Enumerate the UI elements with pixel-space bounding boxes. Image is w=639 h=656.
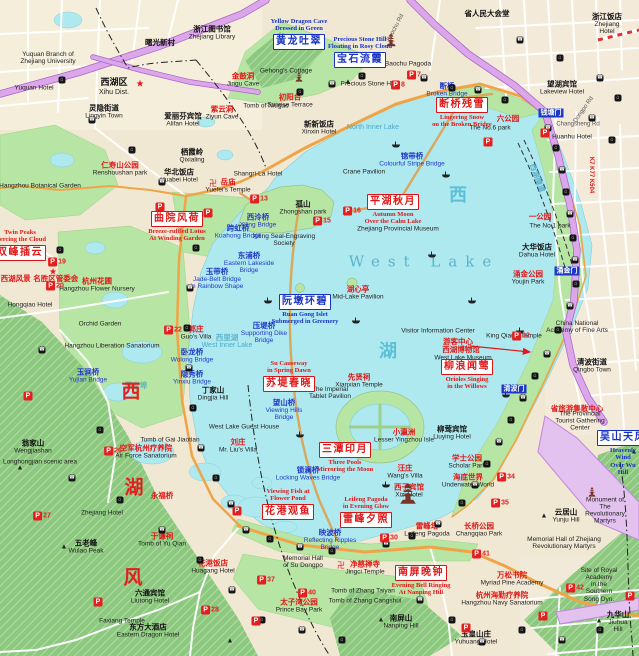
phone-icon: ☎ [479, 639, 486, 646]
map-label: Shangri-La Hotel [234, 170, 283, 177]
gate-label: 清波门 [502, 385, 527, 394]
parking-number: 15 [323, 218, 331, 225]
hotel-icon: ⌂ [609, 137, 616, 144]
district-label: 西湖区Xihu Dist. [99, 79, 129, 97]
map-label: 华北饭店Huabei Hotel [160, 168, 198, 183]
hotel-icon: ⌂ [267, 536, 274, 543]
scenic-caption: Ruan Gong Islet Submerged in Greenery [272, 311, 339, 326]
boat-icon [502, 395, 510, 398]
phone-icon: ☎ [559, 637, 566, 644]
map-label: Site of Royal Academy in the Southern So… [579, 567, 619, 603]
parking-icon: P [252, 617, 261, 626]
west-lake-title: West Lake [349, 255, 499, 270]
phone-icon: ☎ [159, 179, 166, 186]
phone-icon: ☎ [297, 544, 304, 551]
map-label: 新新饭店Xinxin Hotel [302, 120, 337, 135]
boat-icon [392, 145, 400, 148]
scenic-label: 花港观鱼 [262, 504, 314, 520]
map-label: 小瀛洲Lesser Yingzhou Isle [374, 428, 434, 443]
parking-p-glyph: P [164, 326, 173, 335]
parking-p-glyph: P [462, 624, 471, 633]
parking-p-glyph: P [497, 473, 506, 482]
map-label: 净慈禅寺Jingci Temple [345, 560, 384, 575]
parking-number: 35 [501, 500, 509, 507]
parking-p-glyph: P [33, 512, 42, 521]
hotel-icon: ⌂ [297, 89, 304, 96]
map-label: 六公园 [497, 115, 520, 123]
star-icon: ★ [49, 268, 57, 277]
parking-p-glyph: P [24, 392, 33, 401]
hotel-icon: ⌂ [409, 533, 416, 540]
map-label: 一公园 [529, 213, 552, 221]
map-label: 五老峰Wulao Peak [69, 539, 104, 554]
parking-icon: P [233, 507, 242, 516]
map-label: 杭州花圃Hangzhou Flower Nursery [59, 277, 135, 292]
scenic-caption: Lingering Snow on the Broken Bridge [432, 114, 492, 129]
scenic-label: 南屏晚钟 [395, 565, 447, 581]
map-label: 九华山Jiuhua Hill [607, 611, 630, 633]
map-label: Tomb of Gai Jiaotian [140, 436, 199, 443]
parking-p-glyph: P [541, 129, 550, 138]
hotel-icon: ⌂ [519, 627, 526, 634]
parking-icon: P13 [250, 195, 268, 204]
map-label: 爱丽芬宾馆Alifan Hotel [164, 112, 202, 127]
hotel-icon: ⌂ [615, 95, 622, 102]
parking-p-glyph: P [472, 550, 481, 559]
parking-p-glyph: P [257, 576, 266, 585]
map-label: 栖霞岭Qixialing [180, 148, 205, 163]
parking-number: 28 [211, 607, 219, 614]
phone-icon: ☎ [475, 87, 482, 94]
phone-icon: ☎ [520, 395, 527, 402]
parking-number: 42 [576, 585, 584, 592]
parking-p-glyph: P [104, 447, 113, 456]
map-label: 浙江饭店Zhejiang Hotel [591, 13, 623, 35]
parking-number: 22 [174, 327, 182, 334]
parking-p-glyph: P [233, 507, 242, 516]
scenic-caption: Leifeng Pagoda in Evening Glow [343, 496, 389, 511]
hotel-icon: ⌂ [573, 281, 580, 288]
map-label: 万松书院Myriad Pine Academy [481, 571, 544, 586]
parking-number: 41 [482, 551, 490, 558]
map-label: Visitor Information Center [401, 327, 475, 334]
scenic-label: 柳浪闻莺 [441, 359, 493, 375]
map-label: Gehong's Cottage [260, 67, 312, 74]
hotel-icon: ⌂ [553, 145, 560, 152]
phone-icon: ☎ [186, 365, 193, 372]
parking-p-glyph: P [566, 584, 575, 593]
phone-icon: ☎ [243, 527, 250, 534]
parking-p-glyph: P [343, 207, 352, 216]
map-label: 南屏山Nanping Hill [383, 614, 418, 629]
hotel-icon: ⌂ [449, 617, 456, 624]
hotel-icon: ⌂ [97, 427, 104, 434]
inner-lake-label: North Inner Lake [347, 124, 399, 132]
map-label: Memorial Hall of Zhejiang Revolutionary … [527, 536, 601, 550]
phone-icon: ☎ [69, 475, 76, 482]
map-label: 西湖博物馆 [442, 346, 480, 354]
map-label: 翁家山Wengjiashan [14, 439, 51, 454]
map-label: Hangzhou Botanical Garden [0, 182, 81, 189]
hotel-icon: ⌂ [563, 189, 570, 196]
map-label: 望湖宾馆Lakeview Hotel [540, 80, 584, 95]
peak-icon: ▲ [345, 79, 352, 86]
map-label: Yuquan Hotel [14, 84, 53, 91]
scenic-label: 三潭印月 [319, 442, 371, 458]
phone-icon: ☎ [517, 37, 524, 44]
parking-icon: P [204, 209, 213, 218]
map-label: Longhongjian scenic area [3, 458, 77, 465]
parking-icon: P [541, 129, 550, 138]
scenic-caption: Su Causeway in Spring Dawn [267, 360, 311, 375]
parking-number: 26 [114, 448, 122, 455]
parking-icon: P26 [104, 447, 122, 456]
lake-big-character: 湖 [379, 343, 397, 361]
map-label: West Lake Guest House [209, 423, 279, 430]
parking-p-glyph: P [484, 138, 493, 147]
parking-number: 32 [522, 333, 530, 340]
peak-icon: ▲ [17, 465, 24, 472]
parking-p-glyph: P [46, 282, 55, 291]
scenic-caption: Breeze-ruffled Lotus At Winding Garden [148, 228, 205, 243]
map-label-layer: 西湖West LakeNorth Inner Lake西里湖West Inner… [0, 0, 639, 656]
phone-icon: ☎ [567, 303, 574, 310]
hotel-icon: ⌂ [329, 548, 336, 555]
scenic-label: 曲院风荷 [151, 211, 203, 227]
boat-icon [468, 301, 476, 304]
scenic-caption: Evening Bell Ringing At Nanping Hill [392, 582, 451, 597]
phone-icon: ☎ [589, 115, 596, 122]
scenic-area-big-character: 风 [123, 569, 142, 588]
parking-p-glyph: P [391, 81, 400, 90]
map-label: Xiling Seal-Engraving Society [253, 233, 315, 247]
phone-icon: ☎ [89, 117, 96, 124]
parking-p-glyph: P [313, 217, 322, 226]
map-label: Baochu Pagoda [385, 60, 431, 67]
parking-icon: P37 [257, 576, 275, 585]
map-label: 紫云洞Ziyun Cave [206, 105, 239, 120]
scenic-caption: Viewing Fish at Flower Pond [266, 488, 309, 503]
parking-icon: P20 [46, 282, 64, 291]
parking-number: 20 [56, 283, 64, 290]
phone-icon: ☎ [229, 587, 236, 594]
temple-icon: 卍 [209, 180, 217, 188]
boat-icon [442, 175, 450, 178]
parking-icon: P [462, 624, 471, 633]
map-label: Tomb of Zhang Cangshui [329, 597, 402, 604]
map-label: 浙江图书馆Zhejiang Library [189, 25, 236, 40]
scenic-caption: Yellow Dragon Cave Dressed in Green [271, 18, 328, 33]
parking-number: 7 [417, 72, 421, 79]
map-label: 学士公园Scholar Park [448, 454, 485, 469]
pagoda-icon [295, 69, 303, 87]
map-label: 隐秀桥Yinxiu Bridge [173, 370, 211, 385]
gate-label: 涌金门 [555, 267, 580, 276]
scenic-caption: Heavenly Wind Over Wu Hill [610, 447, 636, 477]
hotel-icon: ⌂ [449, 85, 456, 92]
parking-icon: P32 [512, 332, 530, 341]
scenic-label: 吴山天风 [597, 430, 639, 446]
parking-number: 40 [308, 590, 316, 597]
map-label: 汪庄Wang's Villa [387, 464, 422, 479]
phone-icon: ☎ [496, 439, 503, 446]
lake-big-character: 西 [449, 187, 467, 205]
map-label: Crane Pavilion [343, 168, 385, 175]
map-label: 刘庄Mr. Liu's Villa [219, 438, 257, 453]
boat-icon [296, 435, 304, 438]
map-label: 断桥Broken Bridge [426, 82, 467, 97]
map-label: 空军杭州疗养院Air Force Sanatorium [115, 444, 176, 459]
parking-p-glyph: P [298, 589, 307, 598]
parking-number: 37 [267, 577, 275, 584]
hotel-icon: ⌂ [213, 475, 220, 482]
parking-p-glyph: P [252, 617, 261, 626]
map-label: 柳莺宾馆Liuying Hotel [433, 425, 471, 440]
hotel-icon: ⌂ [184, 325, 191, 332]
scenic-label: 苏堤春晓 [263, 376, 315, 392]
parking-icon: P27 [33, 512, 51, 521]
hotel-icon: ⌂ [532, 373, 539, 380]
hotel-icon: ⌂ [359, 73, 366, 80]
hotel-icon: ⌂ [484, 461, 491, 468]
parking-p-glyph: P [201, 606, 210, 615]
scenic-area-big-character: 湖 [124, 479, 143, 498]
scenic-label: 宝石流霞 [334, 52, 386, 68]
map-label: Hangzhou Liberation Sanatorium [64, 342, 159, 349]
parking-icon: P28 [201, 606, 219, 615]
parking-icon: P [484, 138, 493, 147]
scenic-label: 雷峰夕照 [340, 512, 392, 528]
hotel-icon: ⌂ [502, 97, 509, 104]
hotel-icon: ⌂ [459, 500, 466, 507]
map-label: 湖心亭Mid-Lake Pavilion [332, 285, 383, 300]
parking-number: 16 [353, 208, 361, 215]
parking-icon: P [24, 392, 33, 401]
parking-icon: P42 [566, 584, 584, 593]
map-label: 曙光新村 [145, 39, 175, 47]
map-label: Zhejiang Provincial Museum [357, 225, 439, 232]
map-label: 金鼓洞Jingu Cave [227, 72, 260, 87]
map-label: 云居山Yunju Hill [552, 508, 579, 523]
map-label: 丁家山Dingjia Hill [198, 386, 229, 401]
map-label: 海底世界Underwater World [442, 473, 494, 488]
map-label: Hongqiao Hotel [8, 301, 53, 308]
map-label: 卧龙桥Wolong Bridge [171, 348, 214, 363]
hotel-icon: ⌂ [117, 497, 124, 504]
parking-number: 27 [43, 513, 51, 520]
map-label: The No.1 park [529, 222, 570, 229]
hotel-icon: ⌂ [508, 417, 515, 424]
map-label: The Imperial Tablet Pavilion [309, 386, 351, 400]
parking-icon: P7 [407, 71, 421, 80]
parking-p-glyph: P [250, 195, 259, 204]
gate-label: 钱塘门 [539, 109, 564, 118]
temple-icon: 卍 [337, 562, 345, 570]
map-label: 孤山Zhongshan park [280, 200, 327, 215]
peak-icon: ▲ [378, 617, 385, 624]
hotel-icon: ⌂ [555, 327, 562, 334]
parking-icon: P16 [343, 207, 361, 216]
parking-p-glyph: P [512, 332, 521, 341]
phone-icon: ☎ [417, 597, 424, 604]
parking-p-glyph: P [204, 209, 213, 218]
bus-route-label: K7 K77 K504 [588, 157, 594, 193]
peak-icon: ▲ [227, 638, 234, 645]
parking-icon: P8 [391, 81, 405, 90]
parking-p-glyph: P [407, 71, 416, 80]
hotel-icon: ⌂ [57, 247, 64, 254]
parking-number: 13 [260, 196, 268, 203]
parking-p-glyph: P [491, 499, 500, 508]
phone-icon: ☎ [329, 81, 336, 88]
phone-icon: ☎ [472, 482, 479, 489]
boat-icon [382, 485, 390, 488]
map-label: The Provincial Tourist Gathering Center [551, 410, 610, 431]
map-label: Huanhu Hotel [552, 133, 592, 140]
parking-icon: P [539, 612, 548, 621]
hotel-icon: ⌂ [197, 557, 204, 564]
scenic-label: 断桥残雪 [436, 97, 488, 113]
hotel-icon: ⌂ [339, 637, 346, 644]
phone-icon: ☎ [567, 211, 574, 218]
map-label: Orchid Garden [79, 320, 122, 327]
parking-number: 30 [390, 535, 398, 542]
map-label: 跨虹桥Kuahong Bridge [215, 224, 262, 239]
map-label: Memorial Hall of Su Dongpo [283, 555, 323, 569]
map-label: 省人民大会堂 [465, 10, 510, 18]
map-label: Zhejiang Hotel [81, 509, 123, 516]
map-label: Yuquan Branch of Zhejiang University [20, 51, 75, 65]
scenic-caption: Precious Stone Hill Floating in Rosy Clo… [328, 36, 392, 51]
hotel-icon: ⌂ [557, 55, 564, 62]
scenic-label: 阮墩环碧 [279, 294, 331, 310]
parking-icon: P19 [48, 258, 66, 267]
parking-icon: P [626, 592, 635, 601]
phone-icon: ☎ [299, 627, 306, 634]
hotel-icon: ⌂ [59, 77, 66, 84]
parking-icon: P41 [472, 550, 490, 559]
phone-icon: ☎ [559, 167, 566, 174]
parking-icon: P15 [313, 217, 331, 226]
parking-p-glyph: P [48, 258, 57, 267]
phone-icon: ☎ [572, 257, 579, 264]
pagoda-icon [588, 484, 596, 502]
parking-icon: P22 [164, 326, 182, 335]
map-label: 太子湾公园Prince Bay Park [276, 598, 323, 613]
map-label: 玉皇山庄Yuhuang Hotel [455, 630, 498, 645]
map-label: 西湖隧道 [528, 163, 546, 194]
parking-number: 19 [58, 259, 66, 266]
map-label: 长桥公园Changqiao Park [456, 522, 503, 537]
phone-icon: ☎ [597, 75, 604, 82]
map-label: Tomb of Zhang Taiyan [331, 587, 395, 594]
peak-icon: ▲ [596, 618, 603, 625]
map-label: 玉涧桥Yujian Bridge [69, 368, 107, 383]
parking-icon: P35 [491, 499, 509, 508]
hotel-icon: ⌂ [193, 245, 200, 252]
pagoda-icon [399, 483, 417, 510]
scenic-caption: Three Pools Mirroring the Moon [317, 459, 374, 474]
map-label: 东浦桥Eastern Lakeside Bridge [224, 252, 274, 274]
map-label: 杭州海勤疗养院Hangzhou Navy Sanatorium [461, 591, 542, 606]
scenic-caption: Autumn Moon Over the Calm Lake [365, 211, 422, 226]
scenic-label: 黄龙吐翠 [273, 34, 325, 50]
map-label: 于谦祠Tomb of Yu Qian [138, 532, 186, 547]
hotel-icon: ⌂ [190, 405, 197, 412]
phone-icon: ☎ [435, 521, 442, 528]
map-label: 东方大酒店Eastern Dragon Hotel [117, 623, 180, 638]
map-label: 锦带桥Colourful Stripe Bridge [379, 152, 444, 167]
map-label: 涌金公园Youjin Park [512, 270, 545, 285]
parking-number: 34 [507, 474, 515, 481]
map-label: 初阳台Sunrise Terrace [267, 93, 312, 108]
parking-p-glyph: P [380, 534, 389, 543]
parking-icon: P34 [497, 473, 515, 482]
peak-icon: ▲ [541, 513, 548, 520]
parking-number: 8 [401, 82, 405, 89]
star-icon: ★ [136, 80, 144, 89]
hotel-icon: ⌂ [129, 147, 136, 154]
phone-icon: ☎ [198, 445, 205, 452]
west-lake-tourist-map[interactable]: 西湖West LakeNorth Inner Lake西里湖West Inner… [0, 0, 639, 656]
parking-p-glyph: P [539, 612, 548, 621]
scenic-caption: Twin Peaks Piercing the Cloud [0, 229, 46, 244]
parking-icon: P [94, 598, 103, 607]
parking-p-glyph: P [94, 598, 103, 607]
phone-icon: ☎ [544, 351, 551, 358]
phone-icon: ☎ [159, 527, 166, 534]
hotel-icon: ⌂ [570, 235, 577, 242]
map-label: 永福桥 [151, 492, 174, 500]
boat-icon [352, 321, 360, 324]
map-label: 大华饭店Dahua Hotel [519, 243, 555, 258]
map-label: 六通宾馆Liutong Hotel [131, 589, 169, 604]
phone-icon: ☎ [39, 347, 46, 354]
parking-icon: P40 [298, 589, 316, 598]
map-label: 望山桥Viewing Hills Bridge [266, 399, 303, 421]
parking-icon: P30 [380, 534, 398, 543]
phone-icon: ☎ [187, 285, 194, 292]
scenic-label: 平湖秋月 [367, 194, 419, 210]
map-label: 仁寿山公园Renshoushan park [93, 161, 148, 176]
scenic-caption: Orioles Singing in the Willows [446, 376, 489, 391]
scenic-area-big-character: 西 [121, 383, 140, 402]
scenic-label: 双峰插云 [0, 245, 46, 261]
phone-icon: ☎ [421, 75, 428, 82]
map-label: 清波街道Qingbo Town [573, 358, 611, 373]
boat-icon [264, 301, 272, 304]
hotel-icon: ⌂ [597, 627, 604, 634]
peak-icon: ▲ [61, 544, 68, 551]
parking-p-glyph: P [626, 592, 635, 601]
